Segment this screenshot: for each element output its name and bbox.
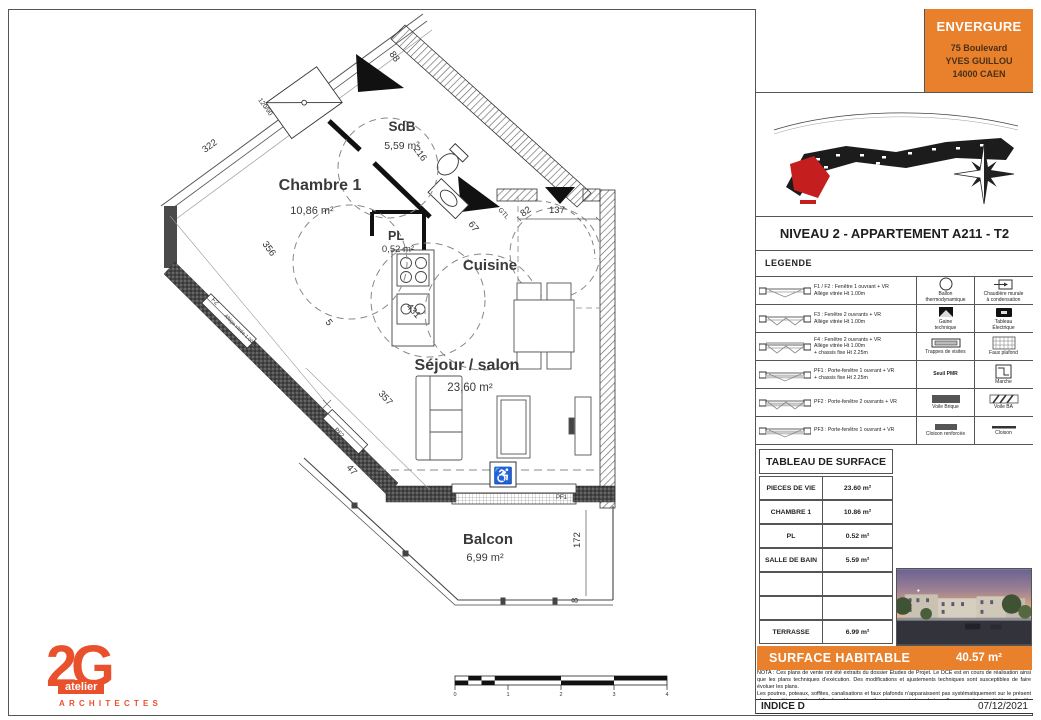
nota-text: NOTA : Ces plans de vente ont été extrai…: [757, 670, 1031, 699]
north-label: N: [990, 139, 995, 146]
legend-row: PF3 : Porte-fenêtre 1 ouvrant + VR Clois…: [756, 417, 1033, 445]
porte-fenetre-2-ouvrants-icon: [759, 395, 811, 410]
table-row: PL0.52 m²: [759, 524, 893, 548]
ballon-thermodynamique-icon: [938, 277, 954, 291]
marche-icon: [995, 364, 1012, 379]
dim-67: 67: [466, 219, 481, 234]
cloison-renforcee-icon: [934, 423, 958, 431]
table-row: [759, 572, 893, 596]
scale-3: 3: [612, 692, 615, 698]
revision-date: 07/12/2021: [978, 701, 1028, 712]
scale-4: 4: [665, 692, 668, 698]
balcony-railing: [299, 458, 613, 605]
table-row: [759, 596, 893, 620]
voile-ba-icon: [989, 394, 1019, 404]
room-pl-area: 0,52 m²: [382, 244, 414, 255]
diagonal-exterior-wall: [164, 262, 398, 495]
toilet: [433, 144, 468, 180]
surface-table-header: TABLEAU DE SURFACE: [759, 449, 893, 474]
faux-plafond-icon: [992, 336, 1016, 350]
tableau-electrique-icon: [995, 306, 1013, 319]
dim-357: 357: [376, 389, 395, 408]
architect-logo: 2G atelier ARCHITECTES: [46, 642, 176, 720]
building-render-photo: [896, 568, 1032, 646]
entry-wall-right: [583, 189, 600, 201]
company-name: ENVERGURE: [925, 19, 1033, 34]
porte-fenetre-1-ouvrant-icon: [759, 423, 811, 438]
room-sejour: Séjour / salon: [415, 357, 520, 374]
right-exterior-wall: [600, 190, 615, 508]
dim-172: 172: [572, 532, 583, 548]
site-map-drawing: N: [756, 92, 1033, 216]
survey-lines: [170, 216, 430, 490]
gaine-technique-icon: [938, 306, 954, 319]
room-chambre-area: 10,86 m²: [290, 205, 334, 217]
drawing-title: NIVEAU 2 - APPARTEMENT A211 - T2: [756, 216, 1033, 251]
fenetre-1-ouvrant-icon: [759, 283, 811, 298]
table-row: CHAMBRE 110.86 m²: [759, 500, 893, 524]
scale-2: 2: [559, 692, 562, 698]
scale-1: 1: [506, 692, 509, 698]
company-address-1: 75 Boulevard: [925, 42, 1033, 55]
legend-row: PF2 : Porte-fenêtre 2 ouvrants + VR Voil…: [756, 389, 1033, 417]
entry-wall-left: [497, 189, 537, 201]
fenetre-2-ouvrants-icon: [759, 311, 811, 326]
room-balcon-area: 6,99 m²: [466, 552, 504, 564]
legend-row: PF1 : Porte-fenêtre 1 ouvrant + VR + cha…: [756, 361, 1033, 389]
dining-table: [514, 283, 574, 369]
scale-0: 0: [453, 692, 456, 698]
revision-row: INDICE D 07/12/2021: [756, 699, 1033, 714]
blank-cell: [756, 9, 924, 92]
room-cuisine: Cuisine: [463, 257, 517, 274]
title-block-panel: ENVERGURE 75 Boulevard YVES GUILLOU 1400…: [755, 9, 1033, 714]
voile-brique-icon: [931, 394, 961, 404]
site-map: N: [756, 92, 1033, 217]
logo-atelier-text: atelier: [58, 680, 104, 694]
chaudiere-murale-icon: [994, 278, 1014, 291]
room-sdb: SdB: [389, 119, 416, 134]
tv-unit: [569, 397, 591, 455]
legend-header: LEGENDE: [756, 250, 1033, 277]
label-pf1: PF1: [556, 495, 568, 501]
kitchen-counter: [392, 250, 434, 346]
legend-row: F3 : Fenêtre 2 ouvrants + VR Allège vitr…: [756, 305, 1033, 333]
table-row: PIECES DE VIE23.60 m²: [759, 476, 893, 500]
label-gtl: GTL: [497, 207, 511, 221]
logo-architectes-text: ARCHITECTES: [59, 699, 162, 708]
wheelchair-icon: ♿: [493, 466, 513, 485]
company-box: ENVERGURE 75 Boulevard YVES GUILLOU 1400…: [924, 9, 1033, 92]
porte-fenetre-1-ouvrant-icon: [759, 367, 811, 382]
table-row: TERRASSE6.99 m²: [759, 620, 893, 644]
coffee-table: [497, 396, 530, 458]
surface-habitable-label: SURFACE HABITABLE: [769, 651, 910, 665]
plan-sheet: ♿ SdB 5,59 m² Chambre 1 10,86 m² PL 0,52…: [0, 0, 1041, 720]
trappe-visite-icon: [931, 337, 961, 349]
dim-137: 137: [549, 205, 565, 216]
dim-82: 82: [518, 204, 533, 219]
legend-row: F4 : Fenêtre 2 ouvrants + VR Allège vitr…: [756, 333, 1033, 361]
room-chambre: Chambre 1: [279, 177, 362, 194]
company-address-2: YVES GUILLOU: [925, 55, 1033, 68]
dim-5: 5: [323, 317, 335, 328]
wheelchair-marker: ♿: [490, 462, 516, 487]
floor-plan: ♿ SdB 5,59 m² Chambre 1 10,86 m² PL 0,52…: [0, 0, 755, 720]
scale-bar: 0 1 2 3 4: [453, 676, 668, 698]
legend-row: F1 / F2 : Fenêtre 1 ouvrant + VR Allège …: [756, 277, 1033, 305]
room-sejour-area: 23,60 m²: [447, 382, 493, 394]
company-address-3: 14000 CAEN: [925, 68, 1033, 81]
company-row: ENVERGURE 75 Boulevard YVES GUILLOU 1400…: [756, 9, 1033, 93]
bottom-wall-right: [573, 486, 615, 502]
surface-habitable-value: 40.57 m²: [956, 652, 1002, 664]
table-row: SALLE DE BAIN5.59 m²: [759, 548, 893, 572]
room-pl: PL: [388, 229, 404, 243]
indice-label: INDICE D: [761, 701, 805, 712]
left-wall: [164, 206, 177, 268]
sdb-exterior-wall: [391, 25, 591, 207]
legend-table: F1 / F2 : Fenêtre 1 ouvrant + VR Allège …: [756, 277, 1033, 447]
dim-356: 356: [260, 239, 278, 258]
fenetre-2-ouvrants-fixe-icon: [759, 339, 811, 354]
bottom-wall-left: [386, 486, 456, 502]
room-balcon: Balcon: [463, 531, 513, 548]
dim-322: 322: [200, 137, 219, 155]
surface-habitable-bar: SURFACE HABITABLE 40.57 m²: [757, 646, 1032, 670]
shower: [266, 67, 342, 139]
dim-8: 8: [570, 598, 581, 603]
